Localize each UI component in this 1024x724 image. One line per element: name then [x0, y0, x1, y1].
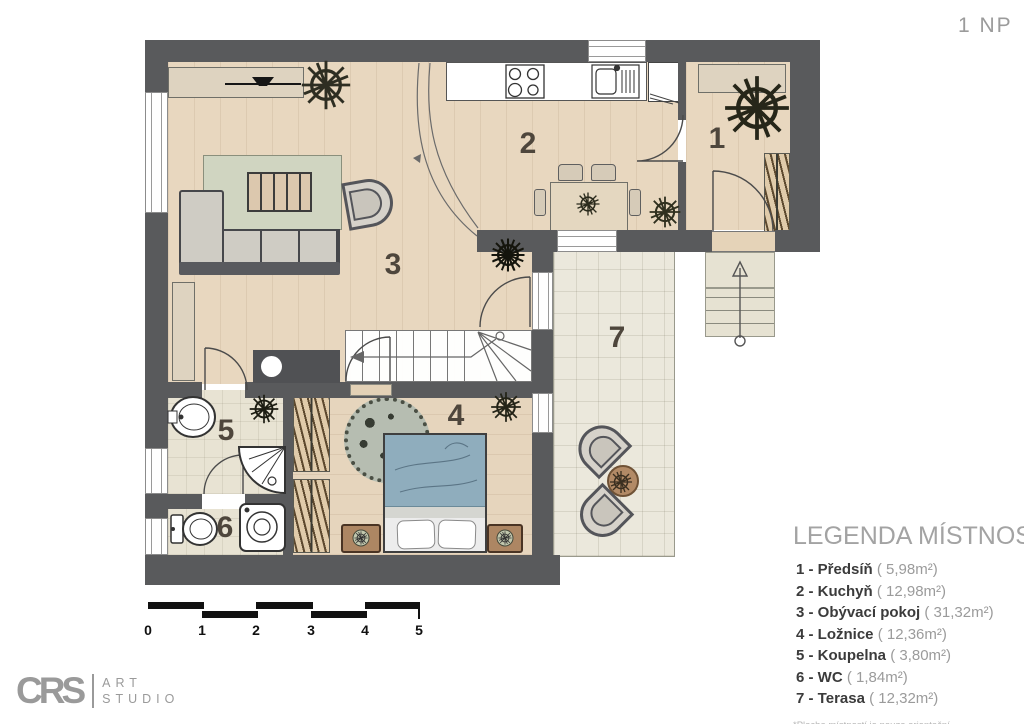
scale-label-1: 1	[192, 622, 212, 638]
toilet-icon	[171, 513, 217, 545]
legend-item: 3 - Obývací pokoj ( 31,32m²)	[793, 602, 1021, 624]
scale-label-4: 4	[355, 622, 375, 638]
scale-label-0: 0	[138, 622, 158, 638]
shower-icon	[239, 447, 285, 493]
nightstand-ornaments	[353, 530, 513, 546]
legend-item-area: ( 5,98m²)	[877, 561, 938, 578]
floorplan-canvas: 1 2 3 4 5 6 7 1 NP LEGENDA MÍSTNOSTÍ 1 -…	[0, 0, 1024, 724]
plant-corner2-icon	[487, 234, 530, 277]
plant-bedroom-icon	[491, 392, 521, 422]
tv-icon	[225, 77, 301, 86]
bed-crease-lines	[395, 443, 477, 492]
scale-label-5: 5	[409, 622, 429, 638]
scale-bar-segment	[311, 611, 367, 618]
washing-machine-icon	[240, 504, 285, 551]
washbasin-icon	[168, 397, 215, 437]
legend-item: 1 - Předsíň ( 5,98m²)	[793, 559, 1021, 581]
legend-item-label: 7 - Terasa	[796, 690, 865, 707]
plant-dining-icon	[576, 192, 599, 215]
door-kitchen-hall	[637, 115, 683, 161]
sink-icon	[592, 65, 639, 98]
legend-item: 6 - WC ( 1,84m²)	[793, 667, 1021, 689]
legend-item-label: 3 - Obývací pokoj	[796, 604, 920, 621]
legend-item-area: ( 1,84m²)	[847, 669, 908, 686]
logo-line1: ART	[102, 675, 179, 691]
logo-wordmark: ART STUDIO	[102, 675, 179, 707]
plant-terrace-icon	[610, 471, 632, 493]
plant-bathroom-icon	[250, 395, 279, 424]
floor-marker: 1 NP	[958, 14, 1013, 38]
legend-item-area: ( 12,98m²)	[877, 583, 946, 600]
legend-item-label: 1 - Předsíň	[796, 561, 873, 578]
door-living-terrace	[480, 277, 530, 327]
entry-stairs-arrow	[733, 262, 747, 346]
room-label-wc: 6	[212, 511, 238, 545]
legend-item-label: 6 - WC	[796, 669, 843, 686]
plant-kitchen-icon	[650, 197, 681, 228]
legend-title: LEGENDA MÍSTNOSTÍ	[793, 522, 1021, 551]
room-label-living: 3	[380, 248, 406, 282]
plant-living-icon	[302, 61, 350, 109]
legend-item-label: 4 - Ložnice	[796, 626, 874, 643]
stove-icon	[506, 65, 544, 98]
scale-bar-segment	[202, 611, 258, 618]
room-label-bedroom: 4	[443, 399, 469, 433]
logo-line2: STUDIO	[102, 691, 179, 707]
legend-item-area: ( 12,32m²)	[869, 690, 938, 707]
room-label-hallway: 1	[704, 122, 730, 156]
scale-label-3: 3	[301, 622, 321, 638]
legend-item-area: ( 31,32m²)	[924, 604, 993, 621]
legend: LEGENDA MÍSTNOSTÍ 1 - Předsíň ( 5,98m²) …	[793, 522, 1021, 724]
room-label-bathroom: 5	[213, 414, 239, 448]
legend-item-label: 2 - Kuchyň	[796, 583, 873, 600]
scale-bar-end-tick	[418, 602, 420, 619]
kitchen-boundary-curve	[413, 63, 478, 236]
scale-label-2: 2	[246, 622, 266, 638]
logo-monogram: CRS	[16, 672, 82, 710]
legend-item: 4 - Ložnice ( 12,36m²)	[793, 624, 1021, 646]
door-arcs	[204, 115, 773, 494]
door-stairs	[346, 337, 390, 381]
fridge-door-lines	[650, 94, 679, 104]
logo-divider	[92, 674, 94, 708]
plant-hallway-icon	[725, 76, 789, 140]
door-entry	[713, 171, 773, 231]
legend-item-area: ( 12,36m²)	[878, 626, 947, 643]
room-label-terrace: 7	[604, 321, 630, 355]
legend-item: 5 - Koupelna ( 3,80m²)	[793, 645, 1021, 667]
door-bathroom	[205, 348, 247, 390]
door-bath-wc	[204, 455, 243, 494]
studio-logo: CRS ART STUDIO	[16, 672, 179, 710]
scale-bar-segment	[365, 602, 419, 609]
legend-item-area: ( 3,80m²)	[890, 647, 951, 664]
legend-item: 2 - Kuchyň ( 12,98m²)	[793, 581, 1021, 603]
legend-item-label: 5 - Koupelna	[796, 647, 886, 664]
legend-footnote: *Plocha místností je pouze orientační	[793, 720, 1021, 724]
scale-bar-segment	[256, 602, 313, 609]
scale-bar-segment	[148, 602, 204, 609]
room-label-kitchen: 2	[515, 127, 541, 161]
legend-item: 7 - Terasa ( 12,32m²)	[793, 688, 1021, 710]
